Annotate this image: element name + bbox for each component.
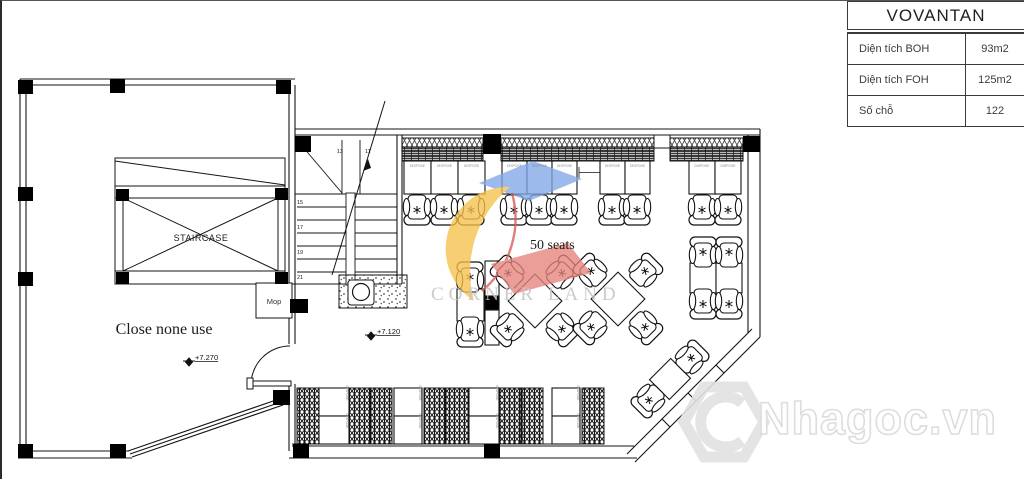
stair-number: 21 [297,275,303,281]
dimension-mark [579,167,600,178]
table-tag-text: DISPOSE [630,164,646,168]
table-tag-text: DISPOSE [532,164,548,168]
table-tag-text: DISPOSE [410,164,426,168]
planter-block [339,275,407,308]
info-table: VOVANTAN Diện tích BOH 93m2 Diện tích FO… [847,1,1024,127]
table-tag-text: DISPOSE [495,413,499,429]
chair-icon [714,195,741,225]
door-swing [247,346,291,389]
table-tag-text: DISPOSE [418,385,422,401]
closed-area-label: Close none use [116,321,213,338]
table-tag-text: DISPOSE [418,413,422,429]
chair-icon [715,237,742,267]
wall-opening [654,135,670,148]
stair-number: 11 [365,149,371,155]
level-main-label: +7.120 [377,327,400,336]
info-row-label: Số chỗ [848,96,966,126]
stair-number: 15 [297,200,303,206]
info-table-row: Diện tích FOH 125m2 [847,65,1024,96]
chair-icon [623,195,650,225]
info-row-value: 125m2 [966,65,1024,95]
staircase-label: STAIRCASE [174,233,229,243]
info-row-label: Diện tích FOH [848,65,966,95]
chair-icon [689,237,716,267]
stair-number: 17 [297,225,303,231]
chair-icon [598,195,625,225]
table-tag-text: DISPOSE [576,385,580,401]
chair-icon [688,195,715,225]
info-row-value: 122 [966,96,1024,126]
chair-icon [715,289,742,319]
info-row-value: 93m2 [966,34,1024,64]
stair-number: 13 [337,149,343,155]
table-tag-text: DISPOSE [495,385,499,401]
info-row-label: Diện tích BOH [848,34,966,64]
table-tag-text: DISPOSE [576,413,580,429]
table-tag-text: DISPOSE [720,164,736,168]
level-left-label: +7.270 [195,353,218,362]
chair-icon [456,317,483,347]
mop-label: Mop [267,297,282,306]
chair-icon [550,195,577,225]
table-tag-text: DISPOSE [345,385,349,401]
level-markers: +7.120 +7.270 [183,327,400,366]
table-tag-text: DISPOSE [557,164,573,168]
info-table-title: VOVANTAN [847,1,1024,30]
chair-icon [689,289,716,319]
seats-label: 50 seats [530,238,575,253]
staircase-shaft [115,158,285,284]
info-table-row: Số chỗ 122 [847,96,1024,127]
table-tag-text: DISPOSE [605,164,621,168]
table-tag-text: DISPOSE [437,164,453,168]
table-tag-text: DISPOSE [345,413,349,429]
stair-number: 19 [297,250,303,256]
info-table-row: Diện tích BOH 93m2 [847,33,1024,65]
chair-icon [403,195,430,225]
nhagoc-logo [684,387,764,457]
table-tag-text: DISPOSE [507,164,523,168]
table-tag-text: DISPOSE [464,164,480,168]
table-tag-text: DISPOSE [694,164,710,168]
floor-plan-canvas: STAIRCASE Close none use Mop 50 seats 13… [0,0,1024,479]
banquette-bench [402,138,743,161]
